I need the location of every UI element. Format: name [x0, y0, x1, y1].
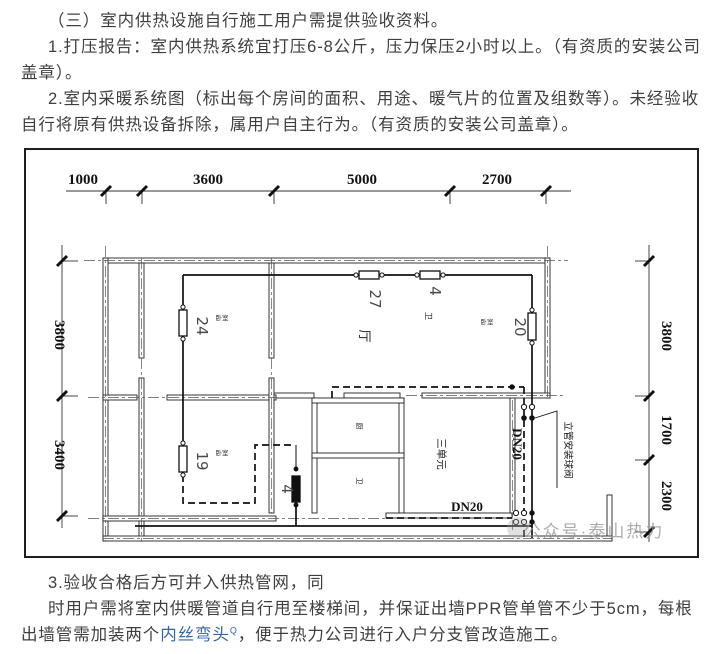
dim-right-3800: 3800 — [658, 321, 674, 351]
dim-top-2700: 2700 — [482, 172, 512, 188]
dim-top-1000: 1000 — [68, 172, 98, 188]
radiator-count-27: 27 — [366, 289, 384, 308]
room-label-bath-top: 卫 — [424, 312, 433, 320]
radiator-count-4-mid: 4 — [278, 484, 296, 494]
radiator-19 — [179, 446, 187, 472]
document-text-bottom: 3.验收合格后方可并入供热管网，同 时用户需将室内供暖管道自行甩至楼梯间，并保证… — [0, 558, 723, 648]
radiator-count-19: 19 — [193, 451, 211, 470]
dim-top-5000: 5000 — [347, 172, 377, 188]
radiator-count-24: 24 — [193, 316, 211, 335]
paragraph-5-tail: ，便于热力公司进行入户分支管改造施工。 — [238, 626, 569, 644]
radiator-count-4-top: 4 — [426, 286, 444, 296]
room-label-bath-mid: 卫 — [355, 478, 363, 485]
radiator-symbols — [179, 271, 536, 507]
watermark-text: 公众号·泰山热力 — [524, 522, 665, 541]
dim-right-2300: 2300 — [658, 481, 674, 511]
valve-note-label: 立管安装球阀 — [562, 421, 574, 478]
radiator-4-top — [420, 271, 440, 279]
document-text-top: （三）室内供热设施自行施工用户需提供验收资料。 1.打压报告：室内供热系统宜打压… — [0, 0, 723, 138]
pipe-label-riser-dn20: DN20 — [510, 428, 525, 460]
floor-plan-svg: 1000 3600 5000 2700 3800 3400 3800 1700 … — [26, 150, 697, 556]
dim-left-3800: 3800 — [51, 320, 67, 350]
right-dimension-line — [635, 245, 649, 542]
dim-top-3600: 3600 — [193, 172, 223, 188]
heating-system-floor-plan: 1000 3600 5000 2700 3800 3400 3800 1700 … — [24, 148, 699, 558]
dim-left-3400: 3400 — [51, 440, 67, 470]
room-label-unit3: 三单元 — [435, 438, 447, 470]
radiator-24 — [179, 310, 187, 336]
room-label-kitchen: 厨 — [355, 423, 363, 430]
valve-note-leader — [535, 411, 557, 488]
paragraph-5: 时用户需将室内供暖管道自行甩至楼梯间，并保证出墙PPR管单管不少于5cm，每根出… — [21, 596, 710, 648]
room-label-hall: 厅 — [357, 329, 372, 342]
entry-link-neisiwantou[interactable]: 内丝弯头 — [160, 626, 230, 644]
paragraph-3: 2.室内采暖系统图（标出每个房间的面积、用途、暖气片的位置及组数等）。未经验收自… — [21, 86, 710, 138]
pipe-label-bottom-dn20: DN20 — [451, 499, 483, 514]
left-dimension-line — [62, 245, 78, 528]
room-label-bedroom-tr: 卧室 — [481, 317, 495, 326]
dim-right-1700: 1700 — [658, 415, 674, 445]
paragraph-4: 3.验收合格后方可并入供热管网，同 — [21, 570, 710, 596]
radiator-count-20: 20 — [511, 317, 529, 336]
room-label-bedroom-bl: 卧室 — [216, 448, 230, 457]
search-icon[interactable]: Q — [230, 626, 238, 636]
floor-plan-walls — [103, 258, 612, 541]
radiator-27 — [359, 271, 379, 279]
paragraph-2: 1.打压报告：室内供热系统宜打压6-8公斤，压力保压2小时以上。（有资质的安装公… — [21, 34, 710, 86]
room-label-bedroom-tl: 卧室 — [216, 313, 230, 322]
paragraph-1: （三）室内供热设施自行施工用户需提供验收资料。 — [21, 8, 710, 34]
